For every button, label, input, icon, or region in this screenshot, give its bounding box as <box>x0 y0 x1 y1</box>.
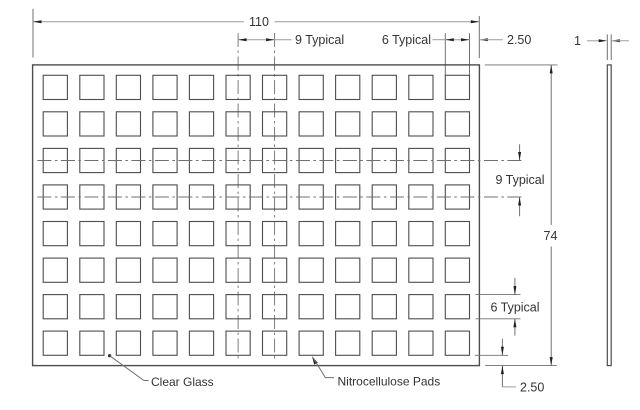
svg-text:6 Typical: 6 Typical <box>490 301 539 315</box>
svg-text:1: 1 <box>574 34 581 48</box>
svg-text:Nitrocellulose Pads: Nitrocellulose Pads <box>338 374 441 388</box>
svg-text:2.50: 2.50 <box>520 380 544 394</box>
svg-text:110: 110 <box>249 15 269 29</box>
svg-text:2.50: 2.50 <box>507 33 531 47</box>
svg-text:Clear Glass: Clear Glass <box>151 375 214 389</box>
svg-text:6 Typical: 6 Typical <box>382 33 431 47</box>
svg-text:9 Typical: 9 Typical <box>495 173 544 187</box>
svg-text:74: 74 <box>544 229 558 243</box>
svg-text:9 Typical: 9 Typical <box>295 33 344 47</box>
